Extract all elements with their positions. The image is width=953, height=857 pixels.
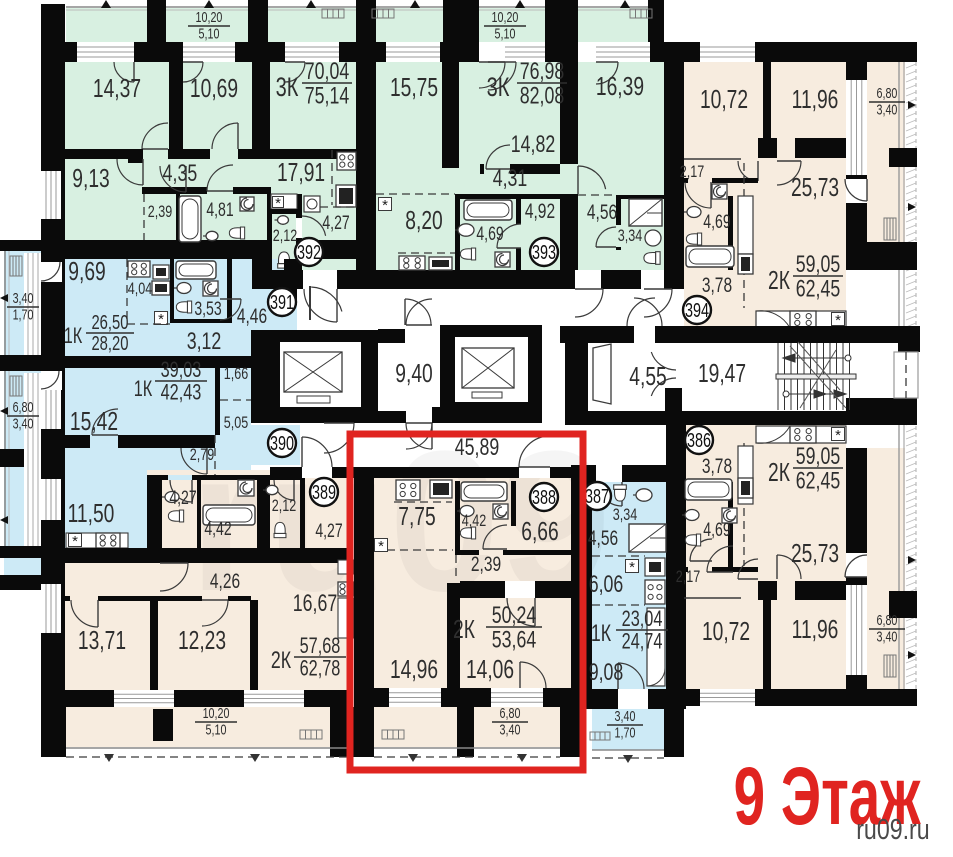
svg-text:3,34: 3,34 bbox=[613, 505, 637, 524]
svg-text:4,69: 4,69 bbox=[703, 211, 730, 233]
svg-text:6,80: 6,80 bbox=[877, 611, 898, 628]
svg-text:17,91: 17,91 bbox=[277, 157, 325, 187]
svg-text:1К: 1К bbox=[64, 324, 83, 349]
svg-text:2,17: 2,17 bbox=[676, 567, 700, 586]
svg-text:3,40: 3,40 bbox=[877, 101, 898, 118]
svg-text:15,42: 15,42 bbox=[70, 406, 118, 436]
svg-text:28,20: 28,20 bbox=[91, 332, 128, 355]
svg-text:2,12: 2,12 bbox=[273, 226, 297, 245]
svg-text:11,50: 11,50 bbox=[68, 498, 115, 528]
svg-text:10,69: 10,69 bbox=[190, 73, 238, 103]
svg-text:4,81: 4,81 bbox=[206, 199, 233, 221]
svg-text:387: 387 bbox=[585, 485, 609, 508]
svg-text:6,80: 6,80 bbox=[877, 84, 898, 101]
svg-text:12,23: 12,23 bbox=[178, 625, 226, 655]
svg-text:82,08: 82,08 bbox=[520, 83, 564, 109]
svg-text:3,78: 3,78 bbox=[702, 454, 732, 478]
svg-text:4,69: 4,69 bbox=[703, 519, 730, 541]
svg-text:10,20: 10,20 bbox=[492, 8, 519, 25]
svg-text:2,12: 2,12 bbox=[272, 496, 296, 515]
svg-text:4,55: 4,55 bbox=[629, 361, 666, 391]
svg-text:2,39: 2,39 bbox=[471, 552, 501, 576]
svg-text:10,72: 10,72 bbox=[702, 616, 750, 646]
svg-text:11,96: 11,96 bbox=[792, 614, 839, 644]
svg-text:388: 388 bbox=[532, 486, 556, 509]
svg-text:6,80: 6,80 bbox=[500, 704, 521, 721]
svg-text:62,45: 62,45 bbox=[796, 276, 840, 302]
svg-text:389: 389 bbox=[312, 481, 336, 504]
svg-text:390: 390 bbox=[270, 432, 294, 455]
svg-text:25,73: 25,73 bbox=[791, 538, 839, 568]
svg-text:4,27: 4,27 bbox=[322, 212, 349, 234]
svg-text:3,40: 3,40 bbox=[615, 707, 636, 724]
svg-text:1К: 1К bbox=[591, 621, 612, 647]
svg-text:39,03: 39,03 bbox=[161, 358, 202, 383]
svg-text:7,75: 7,75 bbox=[398, 501, 435, 531]
svg-text:9,13: 9,13 bbox=[72, 163, 109, 193]
svg-text:10,72: 10,72 bbox=[700, 84, 748, 114]
svg-text:70,04: 70,04 bbox=[305, 59, 350, 85]
svg-text:3К: 3К bbox=[487, 72, 510, 103]
svg-text:1,70: 1,70 bbox=[615, 724, 636, 741]
svg-text:4,04: 4,04 bbox=[128, 279, 152, 298]
svg-text:15,75: 15,75 bbox=[390, 72, 438, 102]
svg-text:4,26: 4,26 bbox=[210, 569, 240, 593]
svg-text:45,89: 45,89 bbox=[455, 435, 499, 461]
svg-text:386: 386 bbox=[687, 429, 711, 452]
svg-text:*: * bbox=[72, 533, 78, 550]
svg-text:25,73: 25,73 bbox=[791, 172, 839, 202]
svg-text:1,70: 1,70 bbox=[13, 306, 34, 323]
svg-text:5,10: 5,10 bbox=[206, 721, 227, 738]
svg-text:*: * bbox=[275, 195, 281, 212]
svg-text:14,96: 14,96 bbox=[390, 654, 438, 684]
svg-text:59,05: 59,05 bbox=[796, 252, 840, 278]
svg-text:3,78: 3,78 bbox=[702, 273, 732, 297]
svg-text:3,40: 3,40 bbox=[500, 721, 521, 738]
svg-text:1,66: 1,66 bbox=[224, 364, 248, 383]
svg-text:14,06: 14,06 bbox=[466, 654, 514, 684]
svg-text:3К: 3К bbox=[276, 72, 299, 103]
svg-text:3,34: 3,34 bbox=[618, 226, 642, 245]
svg-text:13,71: 13,71 bbox=[78, 625, 126, 655]
svg-text:8,20: 8,20 bbox=[405, 205, 442, 235]
svg-text:391: 391 bbox=[270, 291, 294, 314]
svg-text:392: 392 bbox=[297, 241, 321, 264]
svg-text:53,64: 53,64 bbox=[492, 627, 537, 653]
svg-text:4,92: 4,92 bbox=[525, 199, 555, 223]
svg-text:4,69: 4,69 bbox=[476, 223, 503, 245]
svg-text:3,40: 3,40 bbox=[13, 415, 34, 432]
svg-text:19,47: 19,47 bbox=[698, 358, 746, 388]
svg-text:4,35: 4,35 bbox=[163, 161, 198, 187]
svg-text:*: * bbox=[835, 427, 841, 444]
svg-text:3,40: 3,40 bbox=[877, 628, 898, 645]
svg-text:42,43: 42,43 bbox=[161, 380, 202, 405]
svg-text:3,12: 3,12 bbox=[187, 329, 222, 355]
svg-text:24,74: 24,74 bbox=[622, 629, 663, 654]
svg-text:*: * bbox=[629, 559, 635, 576]
svg-text:50,24: 50,24 bbox=[492, 603, 537, 629]
svg-text:*: * bbox=[382, 197, 388, 214]
svg-text:14,37: 14,37 bbox=[93, 73, 141, 103]
svg-text:6,80: 6,80 bbox=[13, 398, 34, 415]
svg-text:393: 393 bbox=[532, 241, 556, 264]
svg-text:6,66: 6,66 bbox=[521, 516, 558, 546]
svg-text:9,40: 9,40 bbox=[395, 358, 432, 388]
svg-text:23,04: 23,04 bbox=[622, 607, 663, 632]
svg-text:2К: 2К bbox=[271, 648, 292, 674]
svg-text:16,39: 16,39 bbox=[596, 71, 644, 101]
svg-text:2,17: 2,17 bbox=[680, 162, 704, 181]
svg-text:ru09.ru: ru09.ru bbox=[856, 812, 929, 845]
svg-text:26,50: 26,50 bbox=[91, 311, 128, 334]
svg-text:62,45: 62,45 bbox=[796, 468, 840, 494]
svg-text:394: 394 bbox=[685, 299, 709, 322]
svg-text:4,42: 4,42 bbox=[204, 518, 231, 540]
svg-text:14,82: 14,82 bbox=[511, 132, 555, 158]
svg-text:5,10: 5,10 bbox=[199, 25, 220, 42]
svg-text:5,05: 5,05 bbox=[224, 413, 248, 432]
svg-text:2К: 2К bbox=[453, 614, 475, 644]
svg-text:4,31: 4,31 bbox=[493, 166, 528, 192]
svg-text:10,20: 10,20 bbox=[203, 704, 230, 721]
svg-text:76,98: 76,98 bbox=[520, 59, 564, 85]
svg-text:11,96: 11,96 bbox=[792, 84, 839, 114]
svg-text:4,56: 4,56 bbox=[587, 200, 617, 224]
svg-text:1К: 1К bbox=[134, 377, 153, 402]
svg-text:9,69: 9,69 bbox=[68, 256, 105, 286]
svg-text:3,40: 3,40 bbox=[13, 289, 34, 306]
svg-text:57,68: 57,68 bbox=[300, 634, 341, 659]
svg-text:16,67: 16,67 bbox=[293, 591, 337, 617]
svg-text:2,79: 2,79 bbox=[190, 445, 214, 464]
svg-text:6,06: 6,06 bbox=[589, 572, 624, 598]
svg-text:9,08: 9,08 bbox=[589, 660, 624, 686]
svg-text:4,56: 4,56 bbox=[588, 526, 618, 550]
svg-text:3,53: 3,53 bbox=[194, 298, 221, 320]
svg-text:75,14: 75,14 bbox=[305, 83, 350, 109]
svg-text:*: * bbox=[158, 311, 164, 328]
svg-text:4,42: 4,42 bbox=[462, 511, 486, 530]
svg-text:*: * bbox=[378, 538, 384, 555]
svg-text:4,46: 4,46 bbox=[237, 304, 267, 328]
svg-text:4,27: 4,27 bbox=[169, 487, 196, 509]
svg-text:2К: 2К bbox=[768, 265, 790, 295]
svg-text:10,20: 10,20 bbox=[196, 8, 223, 25]
svg-text:4,27: 4,27 bbox=[315, 520, 342, 542]
svg-text:59,05: 59,05 bbox=[796, 444, 840, 470]
svg-text:2,39: 2,39 bbox=[148, 202, 172, 221]
svg-text:2К: 2К bbox=[768, 457, 790, 487]
svg-text:62,78: 62,78 bbox=[300, 656, 341, 681]
svg-text:5,10: 5,10 bbox=[495, 25, 516, 42]
